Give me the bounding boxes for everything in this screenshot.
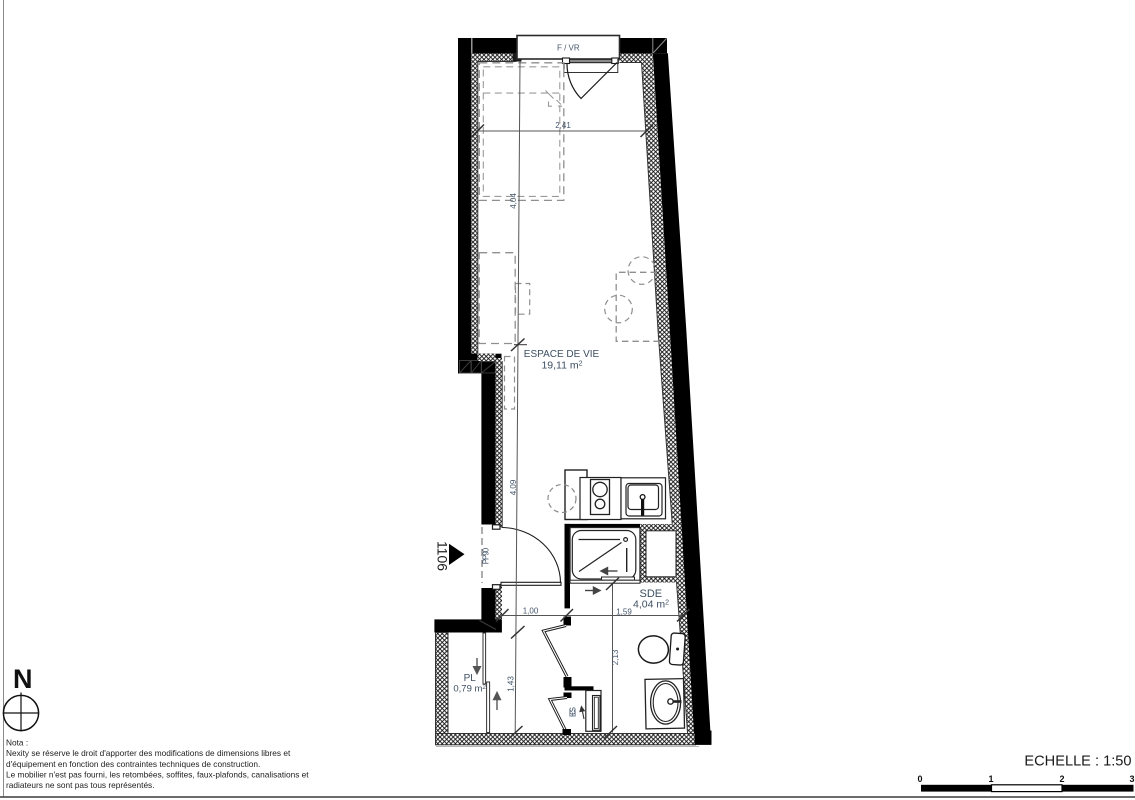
svg-text:4,04 m2: 4,04 m2 bbox=[633, 599, 669, 611]
svg-text:radiateurs ne sont pas tous re: radiateurs ne sont pas tous représentés. bbox=[6, 780, 155, 790]
svg-text:Nota :: Nota : bbox=[6, 738, 28, 748]
svg-text:Nexity se réserve le droit d'a: Nexity se réserve le droit d'apporter de… bbox=[6, 748, 291, 758]
svg-text:0: 0 bbox=[917, 774, 922, 784]
svg-text:19,11 m2: 19,11 m2 bbox=[541, 360, 582, 372]
svg-text:1: 1 bbox=[988, 774, 993, 784]
svg-text:1,00: 1,00 bbox=[523, 607, 539, 616]
svg-text:1106: 1106 bbox=[435, 541, 451, 571]
svg-text:4,09: 4,09 bbox=[509, 479, 518, 495]
svg-text:PP90: PP90 bbox=[482, 547, 491, 564]
svg-text:4,04: 4,04 bbox=[509, 193, 518, 209]
svg-text:1,59: 1,59 bbox=[616, 608, 632, 617]
svg-text:F / VR: F / VR bbox=[557, 44, 580, 53]
svg-text:ESPACE DE VIE: ESPACE DE VIE bbox=[524, 349, 600, 360]
svg-text:1,43: 1,43 bbox=[506, 676, 515, 692]
svg-text:2,41: 2,41 bbox=[555, 121, 571, 130]
svg-text:ECS: ECS bbox=[569, 707, 578, 717]
svg-text:Le mobilier n'est pas fourni,: Le mobilier n'est pas fourni, les retomb… bbox=[6, 769, 309, 779]
svg-text:2: 2 bbox=[1059, 774, 1064, 784]
svg-text:d'équipement en fonction des c: d'équipement en fonction des contraintes… bbox=[6, 759, 260, 769]
svg-text:N: N bbox=[13, 664, 33, 694]
svg-text:ECHELLE : 1:50: ECHELLE : 1:50 bbox=[1024, 754, 1131, 770]
svg-text:3: 3 bbox=[1129, 774, 1134, 784]
svg-text:2,13: 2,13 bbox=[611, 649, 620, 665]
svg-text:0,79 m2: 0,79 m2 bbox=[453, 683, 486, 694]
